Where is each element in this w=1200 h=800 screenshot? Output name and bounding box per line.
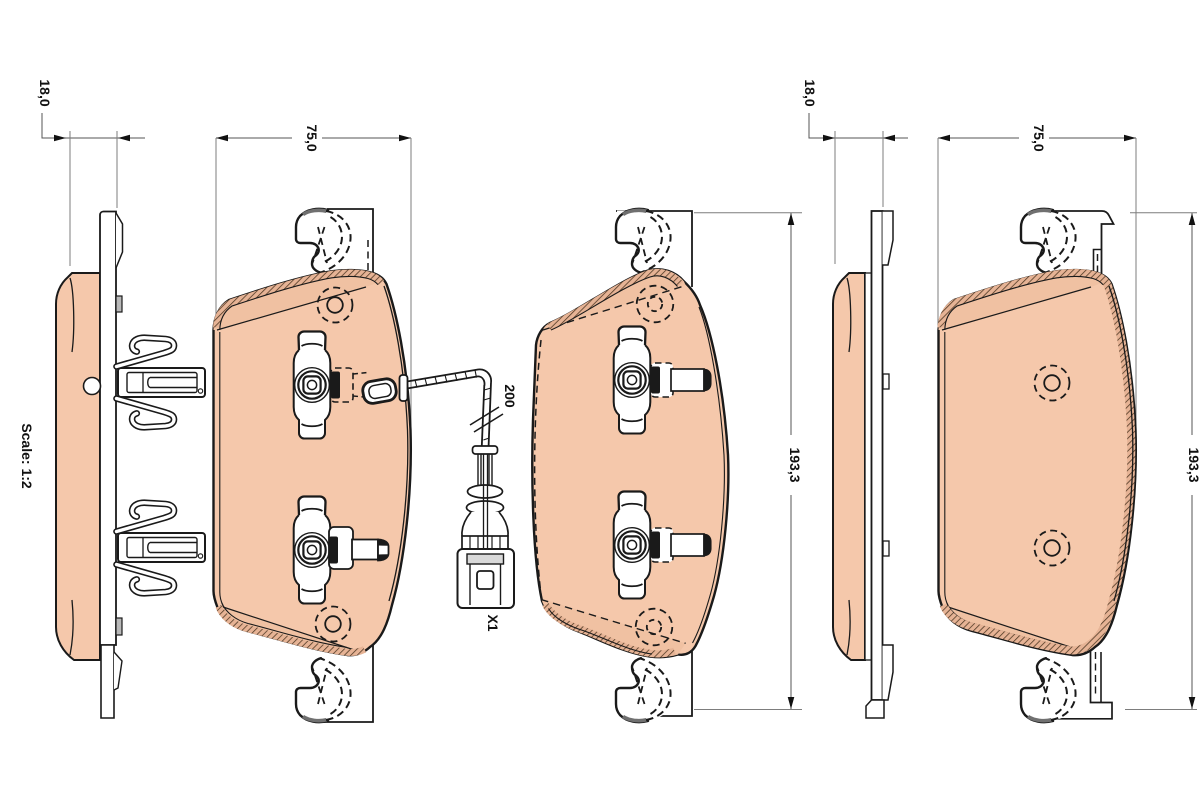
- svg-text:193,3: 193,3: [1186, 447, 1200, 482]
- svg-text:75,0: 75,0: [304, 124, 320, 151]
- svg-text:193,3: 193,3: [787, 447, 803, 482]
- svg-text:X1: X1: [485, 614, 501, 631]
- svg-text:Scale: 1:2: Scale: 1:2: [19, 423, 35, 489]
- svg-text:18,0: 18,0: [37, 79, 53, 106]
- svg-text:75,0: 75,0: [1031, 124, 1047, 151]
- svg-text:200: 200: [502, 384, 518, 408]
- svg-text:18,0: 18,0: [802, 79, 818, 106]
